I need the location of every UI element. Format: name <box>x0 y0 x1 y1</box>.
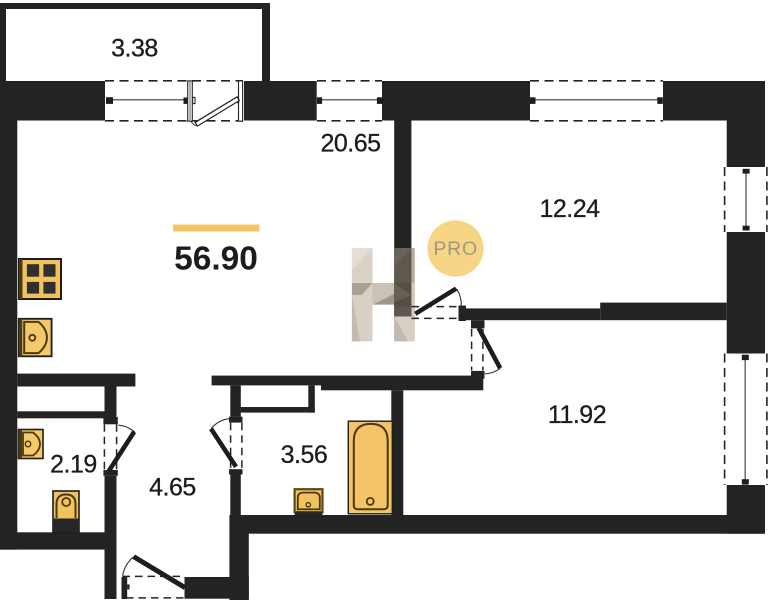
svg-text:56.90: 56.90 <box>174 241 258 278</box>
svg-text:PRO: PRO <box>433 238 478 260</box>
svg-text:20.65: 20.65 <box>320 130 380 158</box>
svg-text:2.19: 2.19 <box>50 451 97 479</box>
svg-text:3.38: 3.38 <box>111 35 158 63</box>
svg-text:4.65: 4.65 <box>149 474 196 502</box>
svg-text:11.92: 11.92 <box>548 401 606 429</box>
svg-text:3.56: 3.56 <box>281 441 328 469</box>
svg-text:12.24: 12.24 <box>539 195 600 223</box>
